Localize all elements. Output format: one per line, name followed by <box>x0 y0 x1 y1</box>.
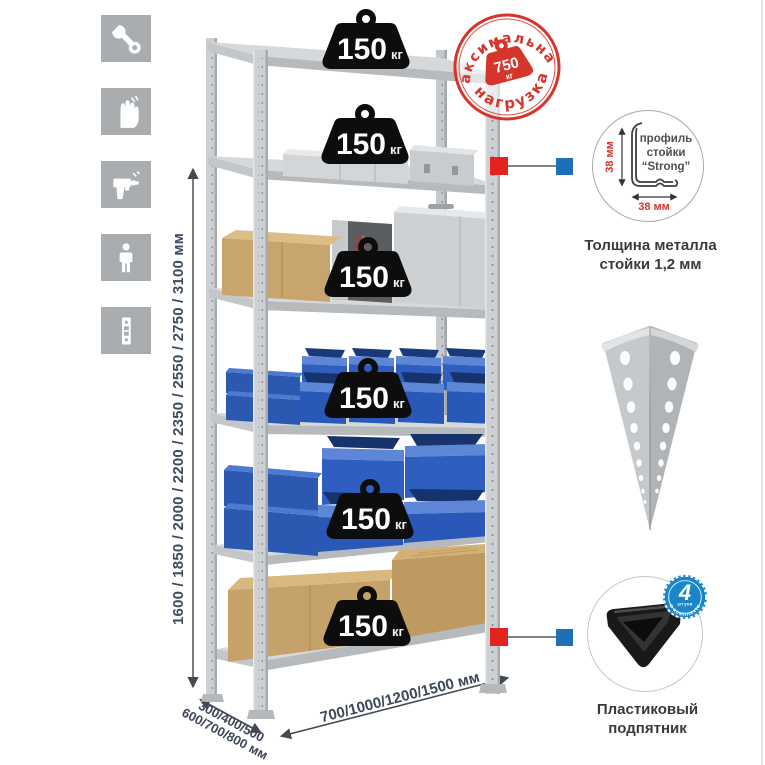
profile-height-label: 38 мм <box>604 141 616 173</box>
svg-text:стойки: стойки <box>647 147 686 159</box>
included-count-badge: 4 штуки в комплекте <box>661 573 709 621</box>
person-icon <box>101 234 151 281</box>
svg-text:кг: кг <box>390 142 403 157</box>
profile-width-label: 38 мм <box>638 201 670 213</box>
svg-text:кг: кг <box>395 517 408 532</box>
page-edge-strip <box>761 0 763 765</box>
svg-text:кг: кг <box>391 47 404 62</box>
svg-text:150: 150 <box>339 261 389 294</box>
max-load-stamp: максимальная нагрузка 750 кг <box>437 0 577 137</box>
foot-callout-connector <box>490 628 573 646</box>
weight-badge-4: 150 кг <box>313 356 423 432</box>
svg-text:150: 150 <box>338 610 388 643</box>
svg-text:кг: кг <box>393 275 406 290</box>
assembly-icons <box>101 15 151 354</box>
svg-text:кг: кг <box>392 624 405 639</box>
rack-post-icon <box>101 307 151 354</box>
weight-badge-3: 150 кг <box>313 235 423 311</box>
svg-text:профиль: профиль <box>640 133 693 145</box>
svg-text:150: 150 <box>337 33 387 66</box>
work-gloves-icon <box>101 88 151 135</box>
svg-text:“Strong”: “Strong” <box>642 161 691 173</box>
weight-badge-2: 150 кг <box>310 102 420 178</box>
foot-caption: Пластиковый подпятник <box>575 700 720 738</box>
svg-text:штуки: штуки <box>677 602 692 607</box>
svg-text:150: 150 <box>339 382 389 415</box>
svg-text:150: 150 <box>336 128 386 161</box>
weight-badge-1: 150 кг <box>311 7 421 83</box>
wrench-icon <box>101 15 151 62</box>
shelving-infographic: 1600 / 1850 / 2000 / 2200 / 2350 / 2550 … <box>0 0 765 765</box>
svg-text:150: 150 <box>341 503 391 536</box>
svg-text:кг: кг <box>393 396 406 411</box>
weight-badge-6: 150 кг <box>312 584 422 660</box>
profile-cross-section: 38 мм 38 мм профиль стойки “Strong” <box>592 110 704 222</box>
angle-post-figure <box>595 308 705 533</box>
height-dimension-label: 1600 / 1850 / 2000 / 2200 / 2350 / 2550 … <box>170 164 188 694</box>
profile-caption: Толщина металла стойки 1,2 мм <box>568 236 733 274</box>
drill-icon <box>101 161 151 208</box>
weight-badge-5: 150 кг <box>315 477 425 553</box>
profile-callout-connector <box>490 157 573 175</box>
